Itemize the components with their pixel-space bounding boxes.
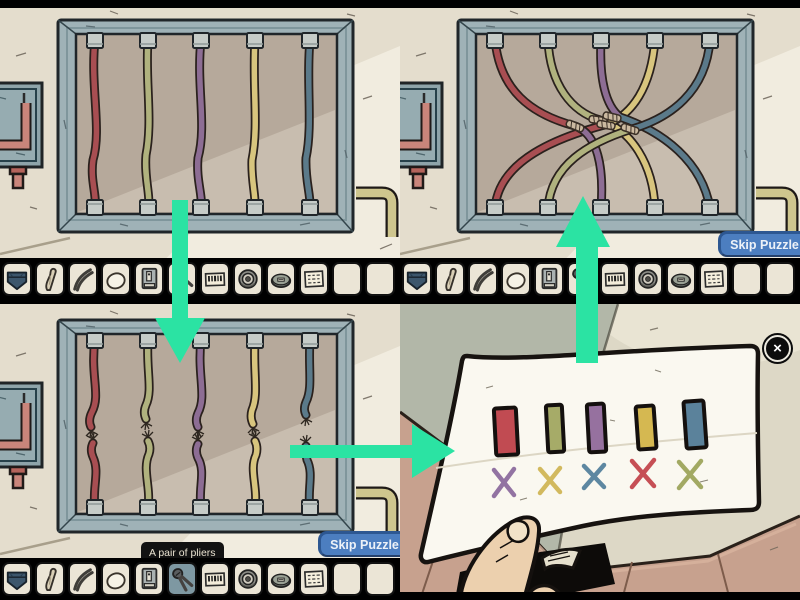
- quadrant-wires-cut: Skip Puzzle A pair of pliers: [0, 300, 400, 600]
- inventory-slot-pouch[interactable]: [2, 562, 32, 596]
- dial-icon: [236, 566, 260, 592]
- swatch-yellow: [636, 405, 657, 449]
- pouch-icon: [405, 266, 429, 292]
- pliers-icon: [570, 266, 594, 292]
- matchbox-icon: [137, 266, 161, 292]
- bone-icon: [38, 266, 62, 292]
- inventory-slot-bone[interactable]: [35, 262, 65, 296]
- inventory-slot-cutters[interactable]: [468, 262, 498, 296]
- barcode-icon: [203, 566, 227, 592]
- swatch-purple: [587, 404, 606, 453]
- inventory-slot-barcode[interactable]: [600, 262, 630, 296]
- inventory-slot-matchbox[interactable]: [134, 262, 164, 296]
- close-icon: ×: [773, 341, 782, 356]
- close-button[interactable]: ×: [764, 335, 791, 362]
- inventory-slot-pliers[interactable]: [167, 562, 197, 596]
- inventory-slot-pouch[interactable]: [402, 262, 432, 296]
- inventory-slot-note[interactable]: [299, 262, 329, 296]
- inventory-slot-dial[interactable]: [233, 562, 263, 596]
- inventory-slot-empty[interactable]: [365, 562, 395, 596]
- inventory-slot-pliers[interactable]: [167, 262, 197, 296]
- cutters-icon: [71, 266, 95, 292]
- inventory-slot-bone[interactable]: [435, 262, 465, 296]
- inventory-slot-tin[interactable]: [266, 562, 296, 596]
- note-icon: [302, 566, 326, 592]
- scene-wires-intact: [0, 0, 400, 300]
- inventory-slot-dial[interactable]: [233, 262, 263, 296]
- tin-icon: [669, 266, 693, 292]
- dial-icon: [636, 266, 660, 292]
- inventory-slot-cutters[interactable]: [68, 562, 98, 596]
- inventory-slot-empty[interactable]: [765, 262, 795, 296]
- inventory-slot-tin[interactable]: [666, 262, 696, 296]
- barcode-icon: [603, 266, 627, 292]
- inventory-slot-cutters[interactable]: [68, 262, 98, 296]
- dial-icon: [236, 266, 260, 292]
- cutters-icon: [471, 266, 495, 292]
- inventory-slot-empty[interactable]: [332, 262, 362, 296]
- letterbox-bottom: [400, 592, 800, 600]
- letterbox-top: [0, 300, 400, 304]
- bone-icon: [438, 266, 462, 292]
- inventory-slot-bone[interactable]: [35, 562, 65, 596]
- inventory-bar: [0, 258, 400, 300]
- matchbox-icon: [537, 266, 561, 292]
- walkthrough-collage: Skip Puzzle: [0, 0, 800, 600]
- inventory-slot-barcode[interactable]: [200, 262, 230, 296]
- inventory-slot-empty[interactable]: [365, 262, 395, 296]
- inventory-slot-matchbox[interactable]: [134, 562, 164, 596]
- wire-blue: [306, 40, 310, 208]
- swatch-blue: [683, 400, 706, 448]
- pouch-icon: [5, 266, 29, 292]
- bone-icon: [38, 566, 62, 592]
- skip-puzzle-button[interactable]: Skip Puzzle: [318, 531, 400, 557]
- quadrant-solution-note: ×: [400, 300, 800, 600]
- egg-icon: [104, 266, 128, 292]
- inventory-slot-note[interactable]: [299, 562, 329, 596]
- pliers-icon: [170, 266, 194, 292]
- inventory-slot-egg[interactable]: [101, 562, 131, 596]
- swatch-red: [494, 407, 518, 455]
- inventory-slot-egg[interactable]: [101, 262, 131, 296]
- pouch-icon: [5, 566, 29, 592]
- inventory-bar: [0, 558, 400, 600]
- egg-icon: [104, 566, 128, 592]
- inventory-slot-barcode[interactable]: [200, 562, 230, 596]
- cutters-icon: [71, 566, 95, 592]
- letterbox-top: [400, 300, 800, 304]
- pliers-icon: [170, 566, 194, 592]
- inventory-slot-matchbox[interactable]: [534, 262, 564, 296]
- inventory-slot-note[interactable]: [699, 262, 729, 296]
- note-icon: [302, 266, 326, 292]
- letterbox-top: [400, 0, 800, 8]
- tin-icon: [269, 266, 293, 292]
- letterbox-top: [0, 0, 400, 8]
- inventory-slot-dial[interactable]: [633, 262, 663, 296]
- inventory-slot-empty[interactable]: [732, 262, 762, 296]
- scene-solution-note: [400, 300, 800, 600]
- inventory-slot-tin[interactable]: [266, 262, 296, 296]
- inventory-bar: [400, 258, 800, 300]
- inventory-slot-pouch[interactable]: [2, 262, 32, 296]
- inventory-slot-empty[interactable]: [332, 562, 362, 596]
- matchbox-icon: [137, 566, 161, 592]
- note-icon: [702, 266, 726, 292]
- inventory-slot-pliers[interactable]: [567, 262, 597, 296]
- barcode-icon: [203, 266, 227, 292]
- egg-icon: [504, 266, 528, 292]
- thumbnail: [508, 521, 529, 542]
- swatch-olive: [546, 405, 564, 453]
- skip-puzzle-button[interactable]: Skip Puzzle: [718, 231, 800, 257]
- quadrant-wires-intact: [0, 0, 400, 300]
- tin-icon: [269, 566, 293, 592]
- quadrant-wires-connected: Skip Puzzle: [400, 0, 800, 300]
- inventory-slot-egg[interactable]: [501, 262, 531, 296]
